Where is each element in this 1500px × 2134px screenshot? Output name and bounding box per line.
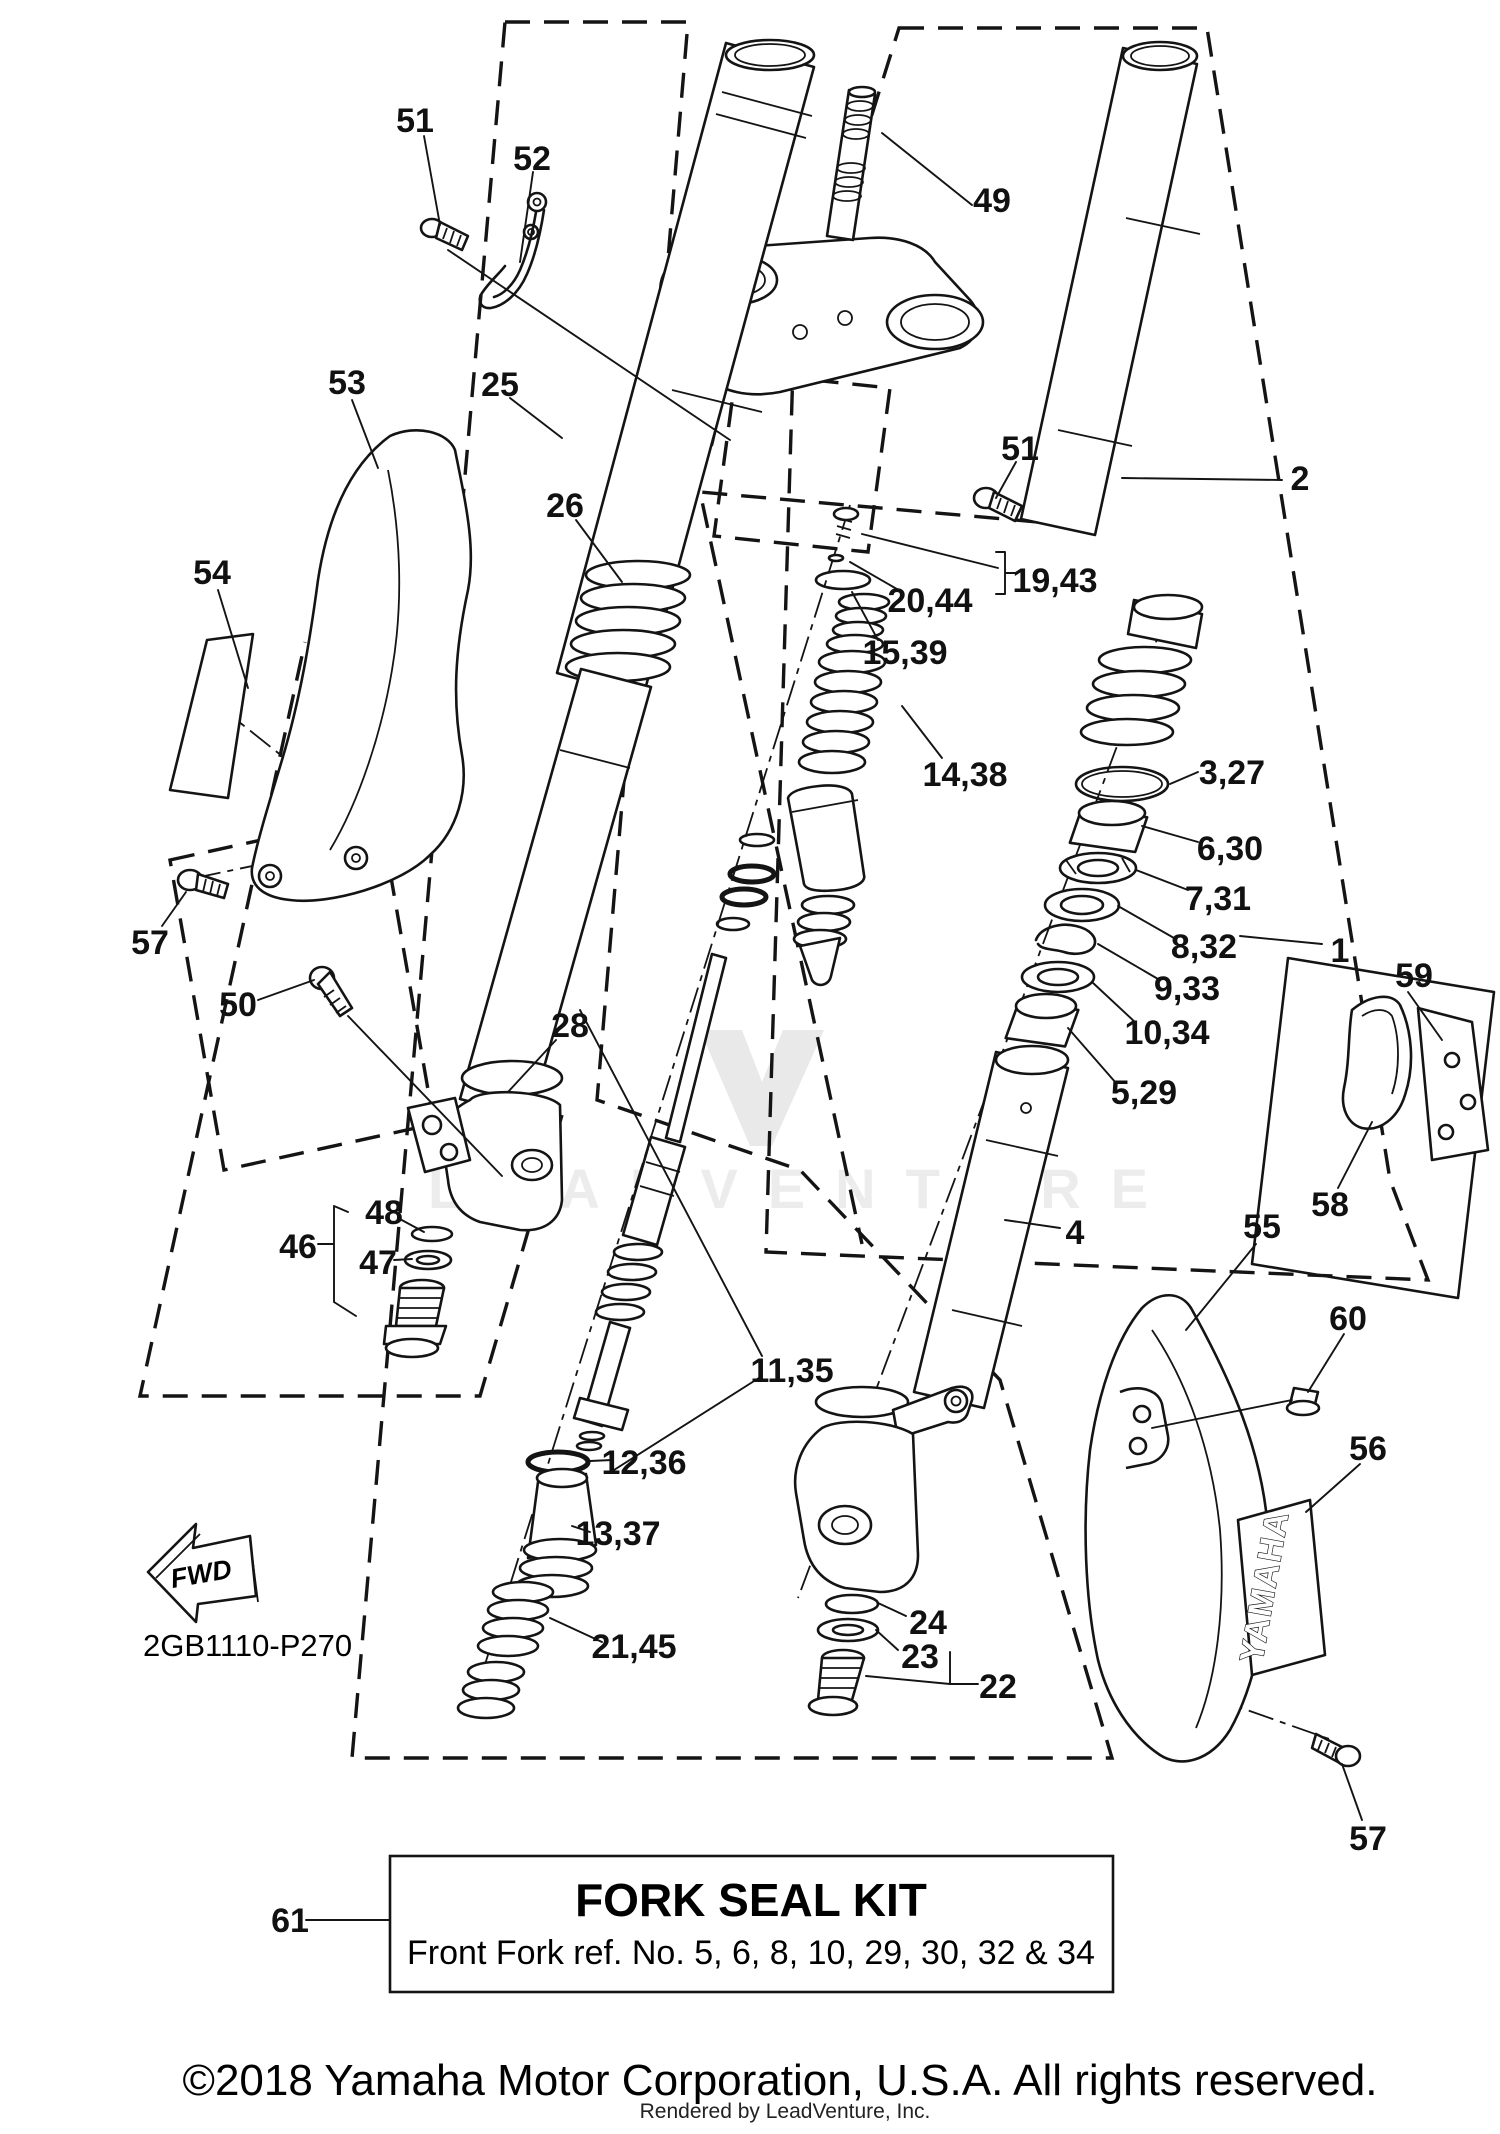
part-protector-53: [252, 430, 471, 900]
part-bracket-58-59: [1252, 958, 1494, 1298]
callout-21-45: 21,45: [591, 1628, 676, 1666]
callout-56: 56: [1349, 1430, 1387, 1468]
callout-11-35: 11,35: [750, 1352, 833, 1390]
callout-13-37: 13,37: [575, 1515, 660, 1553]
callout-14-38: 14,38: [922, 756, 1007, 794]
callout-23: 23: [901, 1638, 939, 1676]
part-outer-tube-26: [460, 40, 814, 1117]
part-decal-56: YAMAHA: [1232, 1500, 1325, 1675]
callout-47: 47: [359, 1244, 397, 1282]
callout-2: 2: [1291, 460, 1310, 498]
callout-61: 61: [271, 1902, 309, 1940]
callout-28: 28: [551, 1007, 589, 1045]
part-sticker-54: [170, 634, 253, 798]
callout-5-29: 5,29: [1111, 1074, 1177, 1112]
callout-12-36: 12,36: [601, 1444, 686, 1482]
callout-48: 48: [365, 1194, 403, 1232]
callout-1: 1: [1331, 932, 1350, 970]
part-right-damper-top: [1081, 595, 1202, 745]
footer: ©2018 Yamaha Motor Corporation, U.S.A. A…: [183, 2056, 1378, 2123]
part-damper-cartridge: [788, 508, 889, 985]
kit-subtitle: Front Fork ref. No. 5, 6, 8, 10, 29, 30,…: [407, 1934, 1095, 1972]
callout-26: 26: [546, 487, 584, 525]
callout-51-top: 51: [396, 102, 434, 140]
part-bracket-52: [480, 193, 546, 308]
callout-22: 22: [979, 1668, 1017, 1706]
part-inner-tube-2: [1021, 42, 1200, 535]
rendered-by-text: Rendered by LeadVenture, Inc.: [640, 2100, 931, 2123]
callout-6-30: 6,30: [1197, 830, 1263, 868]
box-19-43: [714, 372, 890, 552]
callout-4: 4: [1066, 1214, 1085, 1252]
callout-46: 46: [279, 1228, 317, 1266]
callout-49: 49: [973, 182, 1011, 220]
callout-60: 60: [1329, 1300, 1367, 1338]
callout-51-mid: 51: [1001, 430, 1039, 468]
callout-20-44: 20,44: [887, 582, 972, 620]
parts-diagram-page: LEADVENTURE: [0, 0, 1500, 2134]
part-axle-bracket-right: [795, 1387, 972, 1715]
callout-58: 58: [1311, 1186, 1349, 1224]
fork-seal-kit-box: FORK SEAL KIT Front Fork ref. No. 5, 6, …: [390, 1856, 1113, 1992]
callout-53: 53: [328, 364, 366, 402]
part-seal-stack-right: [1006, 767, 1168, 1048]
callout-52: 52: [513, 140, 551, 178]
leadventure-v-logo-icon: [700, 1030, 824, 1146]
front-fork-diagram: LEADVENTURE: [0, 0, 1500, 2134]
callout-8-32: 8,32: [1171, 928, 1237, 966]
part-steering-stem-49: [827, 87, 875, 240]
copyright-text: ©2018 Yamaha Motor Corporation, U.S.A. A…: [183, 2056, 1378, 2105]
callout-59: 59: [1395, 957, 1433, 995]
callout-55: 55: [1243, 1208, 1281, 1246]
callout-19-43: 19,43: [1012, 562, 1097, 600]
part-oil-lock-group: [458, 1452, 596, 1718]
part-bolt-57-bottom: [1312, 1734, 1360, 1766]
callout-7-31: 7,31: [1185, 880, 1251, 918]
fwd-marker: FWD 2GB1110-P270: [143, 1524, 352, 1663]
callout-10-34: 10,34: [1124, 1014, 1209, 1052]
part-piston-rings: [717, 834, 774, 930]
callout-57-bottom: 57: [1349, 1820, 1387, 1858]
diagram-code: 2GB1110-P270: [143, 1628, 352, 1663]
callout-15-39: 15,39: [862, 634, 947, 672]
callout-25: 25: [481, 366, 519, 404]
callout-54: 54: [193, 554, 231, 592]
callout-9-33: 9,33: [1154, 970, 1220, 1008]
callout-57-left: 57: [131, 924, 169, 962]
callout-50: 50: [219, 986, 257, 1024]
callout-24: 24: [909, 1604, 947, 1642]
kit-title: FORK SEAL KIT: [575, 1874, 927, 1926]
callout-3-27: 3,27: [1199, 754, 1265, 792]
